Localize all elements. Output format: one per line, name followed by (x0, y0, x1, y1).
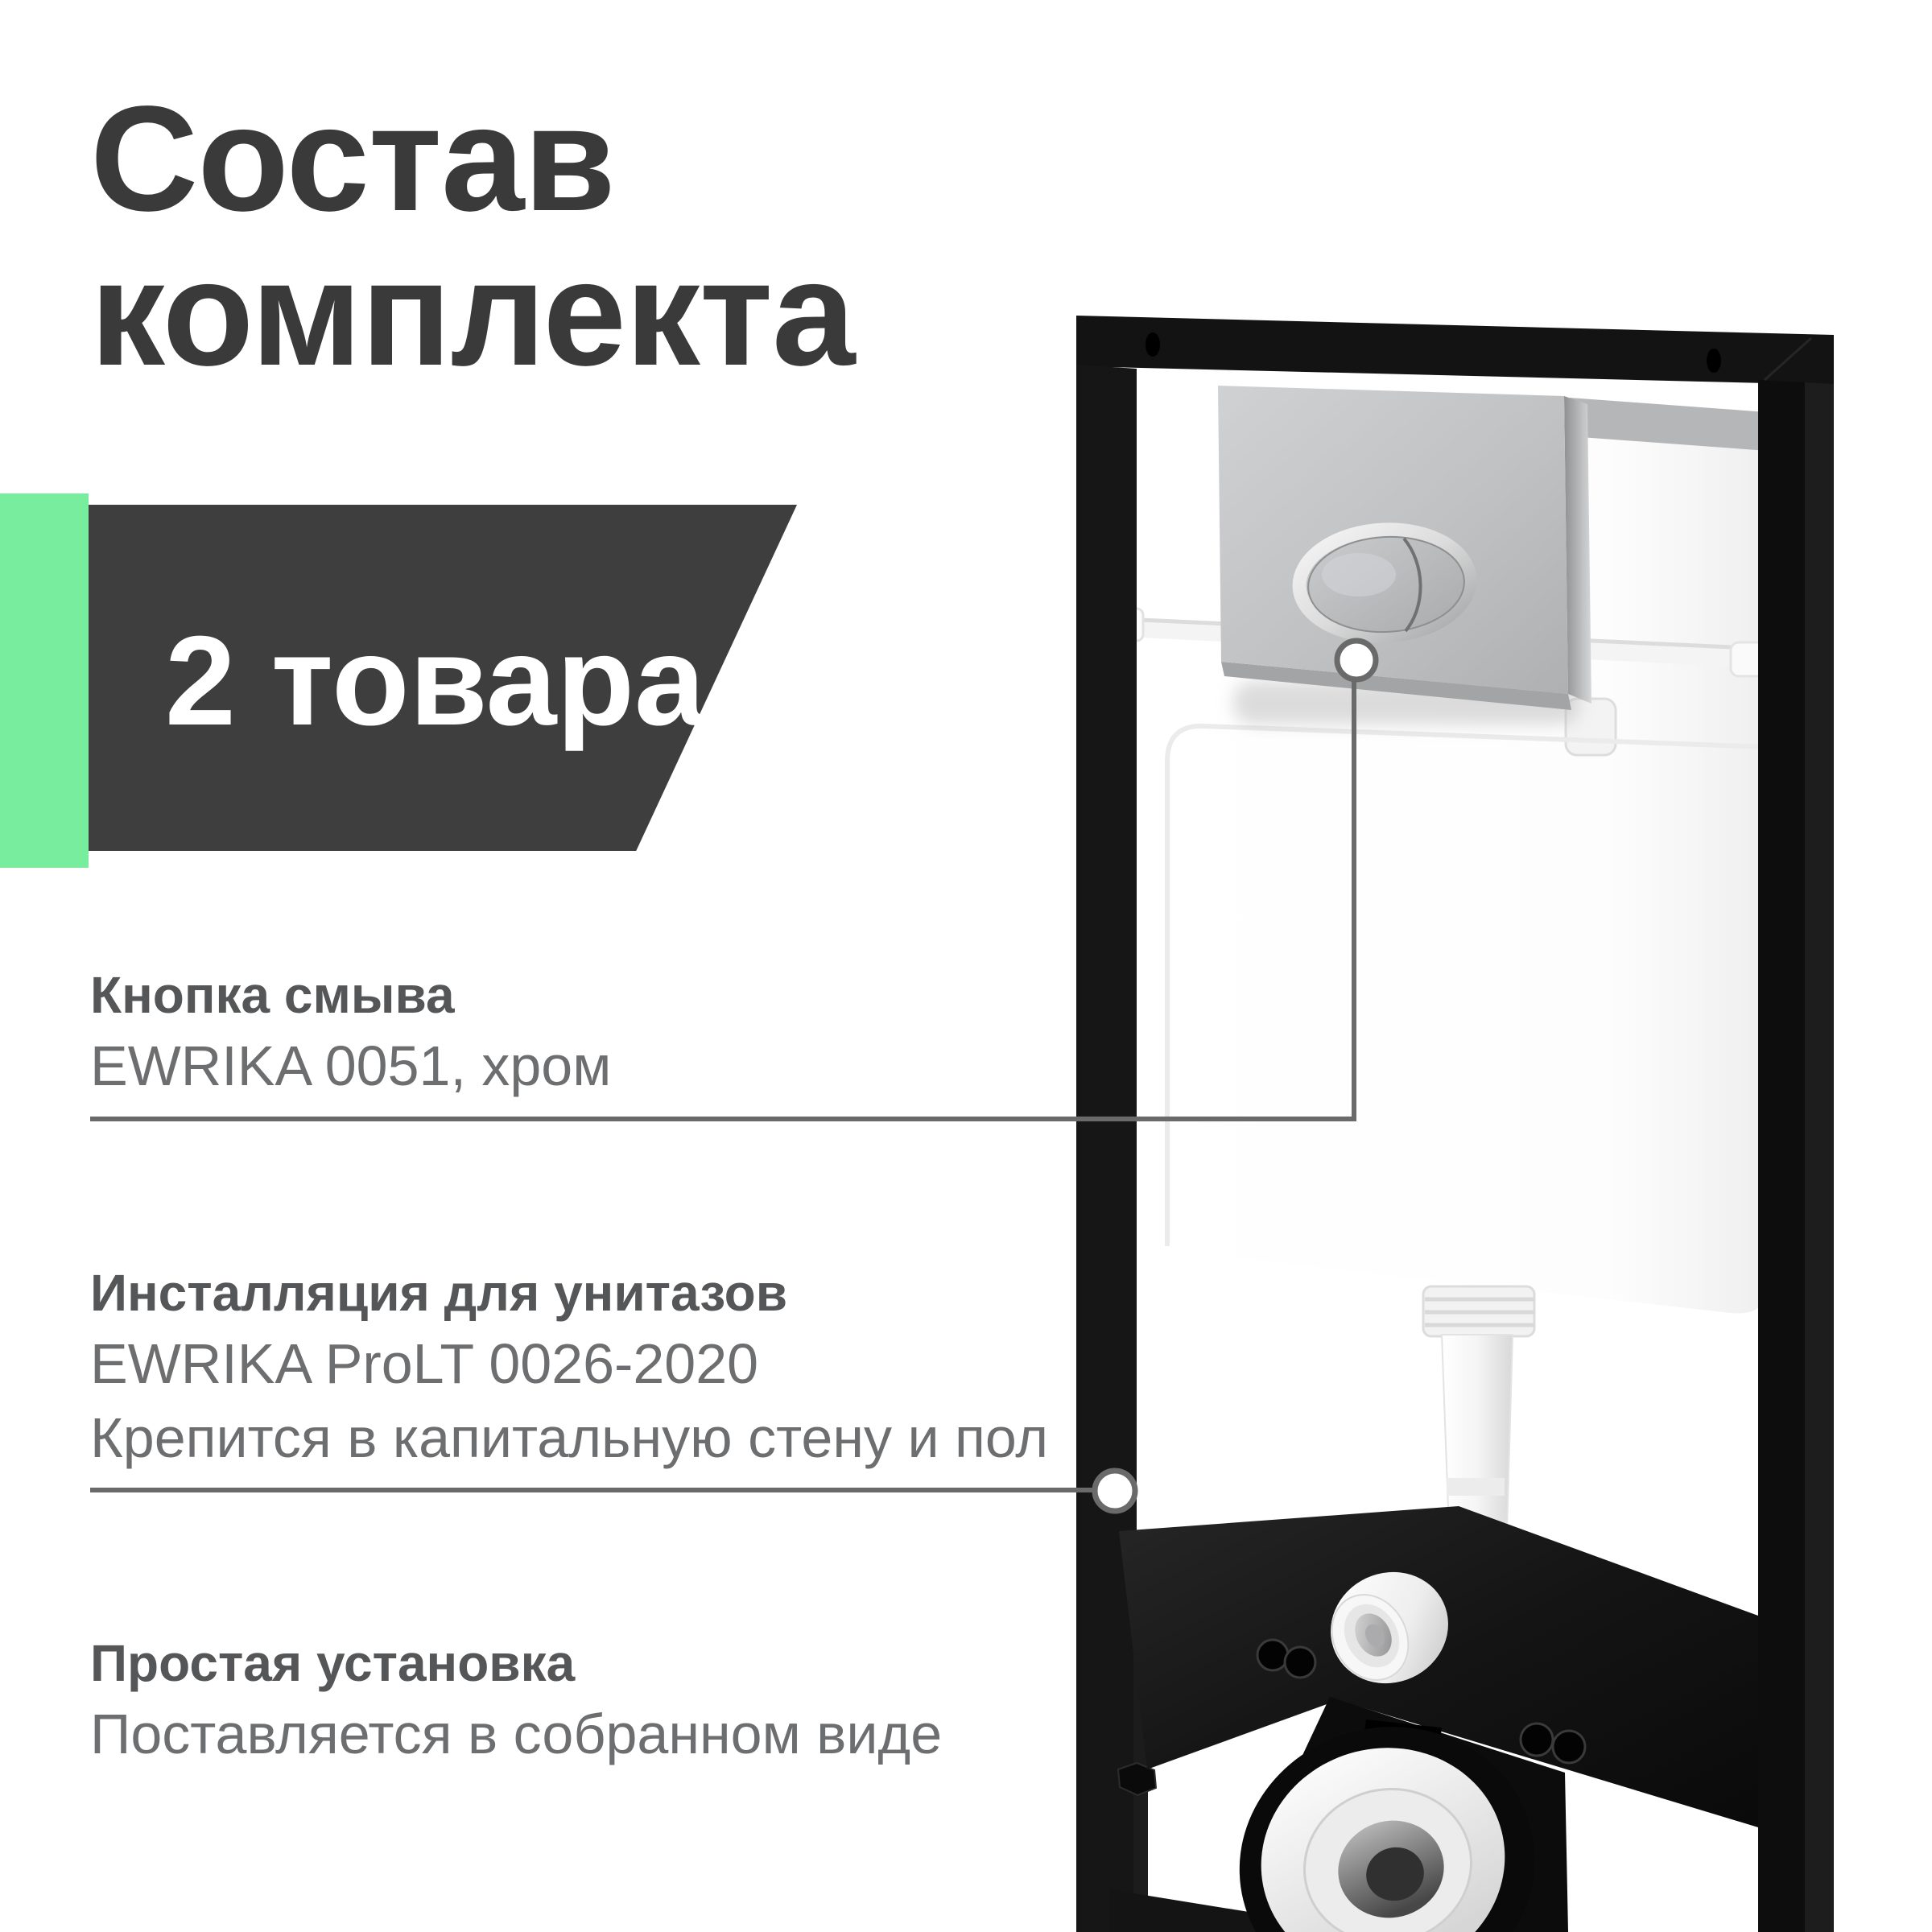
plate-hole (1521, 1724, 1553, 1756)
flush-plate-side-edge (1564, 396, 1591, 704)
callout-circle-frame (1095, 1471, 1135, 1511)
product-render-installation-frame (0, 0, 1932, 1932)
plate-hole (1257, 1640, 1288, 1670)
frame-top-bar (1076, 316, 1834, 385)
product-infographic: Состав комплекта 2 товара Кнопка смыва E… (0, 0, 1932, 1932)
callout-circle-flush-button (1337, 641, 1376, 679)
flush-plate (1218, 386, 1591, 710)
frame-hole-right (1707, 349, 1721, 373)
frame-right-leg-bevel (1805, 382, 1834, 1932)
plate-hole (1285, 1647, 1315, 1678)
flush-pipe (1423, 1286, 1534, 1531)
flush-pipe-joint-band (1447, 1478, 1505, 1496)
flush-pipe-tube (1442, 1335, 1513, 1531)
plate-hole (1553, 1731, 1585, 1763)
frame-left-leg (1076, 365, 1137, 1932)
flush-button-highlight (1322, 553, 1396, 597)
frame-hole-left (1146, 332, 1160, 357)
